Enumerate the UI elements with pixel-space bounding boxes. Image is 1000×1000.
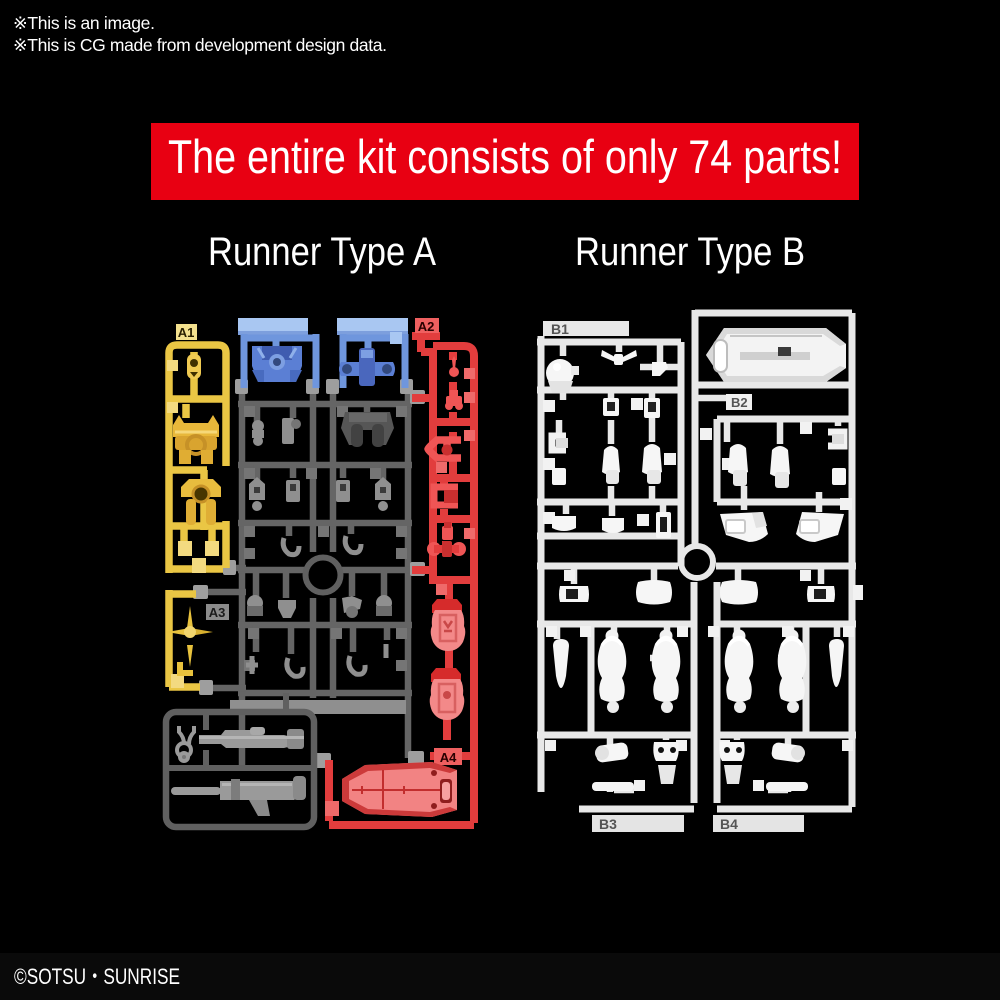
svg-text:A4: A4 [440, 750, 457, 765]
svg-text:B1: B1 [551, 321, 569, 337]
svg-text:©SOTSU・SUNRISE: ©SOTSU・SUNRISE [14, 964, 180, 989]
svg-text:Runner Type B: Runner Type B [575, 230, 805, 274]
svg-text:B4: B4 [720, 816, 738, 832]
svg-text:B2: B2 [731, 395, 748, 410]
svg-text:※This is an image.: ※This is an image. [13, 13, 155, 33]
svg-text:A1: A1 [178, 325, 195, 340]
svg-text:A2: A2 [418, 319, 435, 334]
svg-text:Runner Type A: Runner Type A [208, 230, 436, 274]
svg-text:B3: B3 [599, 816, 617, 832]
svg-text:The entire kit consists of onl: The entire kit consists of only 74 parts… [168, 130, 842, 183]
svg-text:※This is CG made from developm: ※This is CG made from development design… [13, 35, 387, 55]
svg-text:A3: A3 [209, 605, 226, 620]
